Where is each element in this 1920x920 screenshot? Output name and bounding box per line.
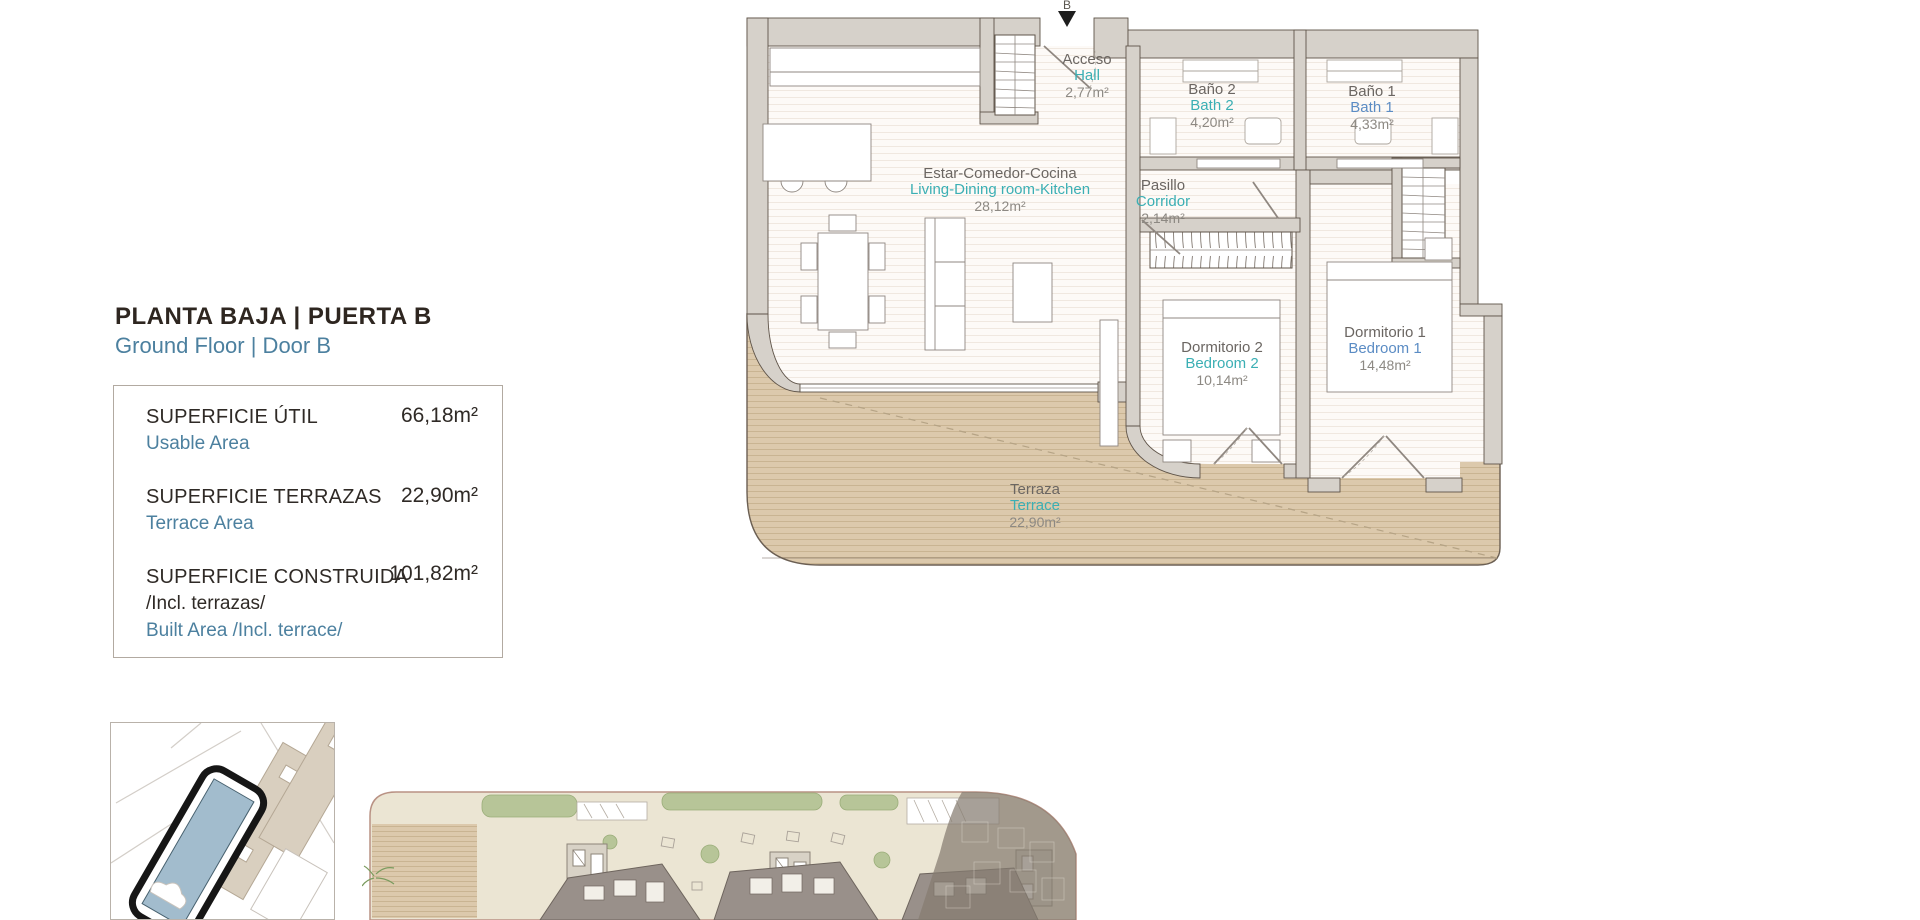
tv-sideboard [1100,320,1118,446]
usable-area-value: 66,18m² [401,404,478,428]
site-plan-svg [111,723,334,919]
wardrobe-bedroom2 [1150,232,1292,268]
terrace-area-label: SUPERFICIE TERRAZAS [146,486,382,509]
room-label-bedroom1: Dormitorio 1 Bedroom 1 14,48m² [1344,325,1426,373]
kitchen-counter [770,48,980,86]
built-area-sublabel-en: Built Area /Incl. terrace/ [146,620,342,642]
coffee-table [1013,263,1052,322]
entrance-arrow: B [1058,0,1076,27]
room-label-living: Estar-Comedor-Cocina Living-Dining room-… [910,166,1090,214]
page-title: PLANTA BAJA | PUERTA B [115,303,432,331]
built-area-sublabel-es: /Incl. terrazas/ [146,593,265,615]
room-label-corridor: Pasillo Corridor 2,14m² [1136,178,1190,226]
usable-area-sublabel: Usable Area [146,433,250,455]
building-key-plan [362,782,1092,920]
site-highlighted-building [127,763,270,919]
area-summary-box: SUPERFICIE ÚTIL 66,18m² Usable Area SUPE… [113,385,503,658]
floor-plan: B Acceso Hall 2,77m² Baño 2 Bath 2 4,20m… [740,0,1510,580]
page-subtitle: Ground Floor | Door B [115,333,331,359]
room-label-hall: Acceso Hall 2,77m² [1062,52,1111,100]
room-label-bath1: Baño 1 Bath 1 4,33m² [1348,84,1396,132]
entry-staircase [995,35,1035,115]
room-label-terrace: Terraza Terrace 22,90m² [1009,482,1060,530]
terrace-area-value: 22,90m² [401,484,478,508]
room-label-bedroom2: Dormitorio 2 Bedroom 2 10,14m² [1181,340,1263,388]
terrace-area-sublabel: Terrace Area [146,513,254,535]
built-area-label: SUPERFICIE CONSTRUIDA [146,566,408,589]
room-label-bath2: Baño 2 Bath 2 4,20m² [1188,82,1236,130]
svg-text:B: B [1063,0,1071,12]
terrace-slider [800,384,1098,392]
site-plan [110,722,335,920]
usable-area-label: SUPERFICIE ÚTIL [146,406,318,429]
sofa [925,218,965,350]
brochure-page: PLANTA BAJA | PUERTA B Ground Floor | Do… [0,0,1920,920]
built-area-value: 101,82m² [389,562,478,586]
building-key-plan-svg [362,782,1092,920]
